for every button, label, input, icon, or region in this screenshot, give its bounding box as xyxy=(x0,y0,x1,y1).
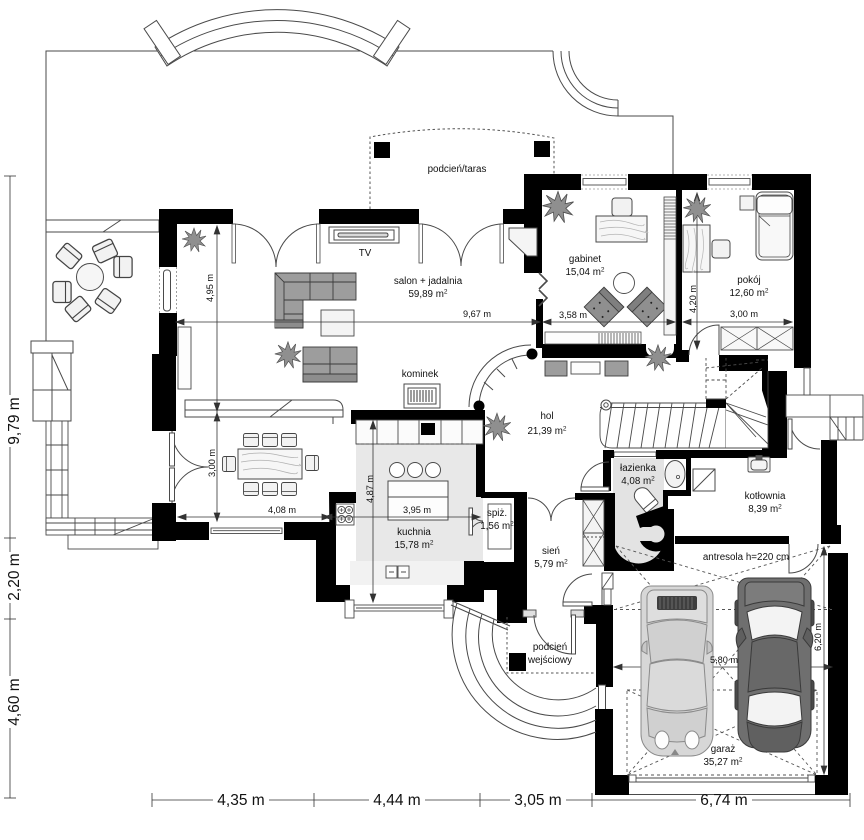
svg-text:15,78 m2: 15,78 m2 xyxy=(394,540,433,552)
svg-text:kuchnia: kuchnia xyxy=(397,527,431,538)
svg-text:3,05 m: 3,05 m xyxy=(514,792,561,809)
svg-text:6,20 m: 6,20 m xyxy=(813,623,823,651)
svg-text:łazienka: łazienka xyxy=(620,463,656,474)
svg-text:12,60 m2: 12,60 m2 xyxy=(729,288,768,300)
svg-text:59,89 m2: 59,89 m2 xyxy=(408,289,447,301)
svg-text:4,35 m: 4,35 m xyxy=(217,792,264,809)
svg-text:9,67 m: 9,67 m xyxy=(463,309,491,319)
svg-text:3,00 m: 3,00 m xyxy=(207,449,217,477)
svg-text:salon + jadalnia: salon + jadalnia xyxy=(394,276,463,287)
svg-text:6,74 m: 6,74 m xyxy=(700,792,747,809)
svg-text:hol: hol xyxy=(540,411,553,422)
svg-text:4,08 m: 4,08 m xyxy=(268,505,296,515)
svg-text:3,00 m: 3,00 m xyxy=(730,309,758,319)
svg-text:35,27 m2: 35,27 m2 xyxy=(703,757,742,769)
svg-text:kotłownia: kotłownia xyxy=(745,491,786,502)
svg-text:5,79 m2: 5,79 m2 xyxy=(534,559,568,571)
svg-text:4,20 m: 4,20 m xyxy=(688,285,698,313)
svg-text:pokój: pokój xyxy=(737,275,760,286)
svg-text:9,79 m: 9,79 m xyxy=(6,397,23,444)
svg-text:1,56 m2: 1,56 m2 xyxy=(480,521,514,533)
svg-text:kominek: kominek xyxy=(402,369,439,380)
svg-text:3,95 m: 3,95 m xyxy=(403,505,431,515)
svg-text:4,87 m: 4,87 m xyxy=(365,475,375,503)
svg-text:podcień: podcień xyxy=(533,642,567,653)
svg-text:gabinet: gabinet xyxy=(569,254,601,265)
svg-text:podcień/taras: podcień/taras xyxy=(428,164,487,175)
svg-text:garaż: garaż xyxy=(711,744,736,755)
svg-text:4,95 m: 4,95 m xyxy=(205,274,215,302)
svg-text:antresola h=220 cm: antresola h=220 cm xyxy=(703,552,789,563)
svg-text:sień: sień xyxy=(542,546,560,557)
svg-text:4,44 m: 4,44 m xyxy=(373,792,420,809)
svg-text:21,39 m2: 21,39 m2 xyxy=(527,426,566,438)
svg-text:15,04 m2: 15,04 m2 xyxy=(565,267,604,279)
svg-text:TV: TV xyxy=(359,248,372,259)
svg-text:spiż.: spiż. xyxy=(487,508,507,519)
svg-text:3,58 m: 3,58 m xyxy=(559,310,587,320)
svg-text:5,80 m: 5,80 m xyxy=(710,655,738,665)
svg-text:2,20 m: 2,20 m xyxy=(6,553,23,600)
svg-text:wejściowy: wejściowy xyxy=(527,655,572,666)
svg-text:4,60 m: 4,60 m xyxy=(6,678,23,725)
svg-text:4,08 m2: 4,08 m2 xyxy=(621,476,655,488)
svg-text:8,39 m2: 8,39 m2 xyxy=(748,504,782,516)
